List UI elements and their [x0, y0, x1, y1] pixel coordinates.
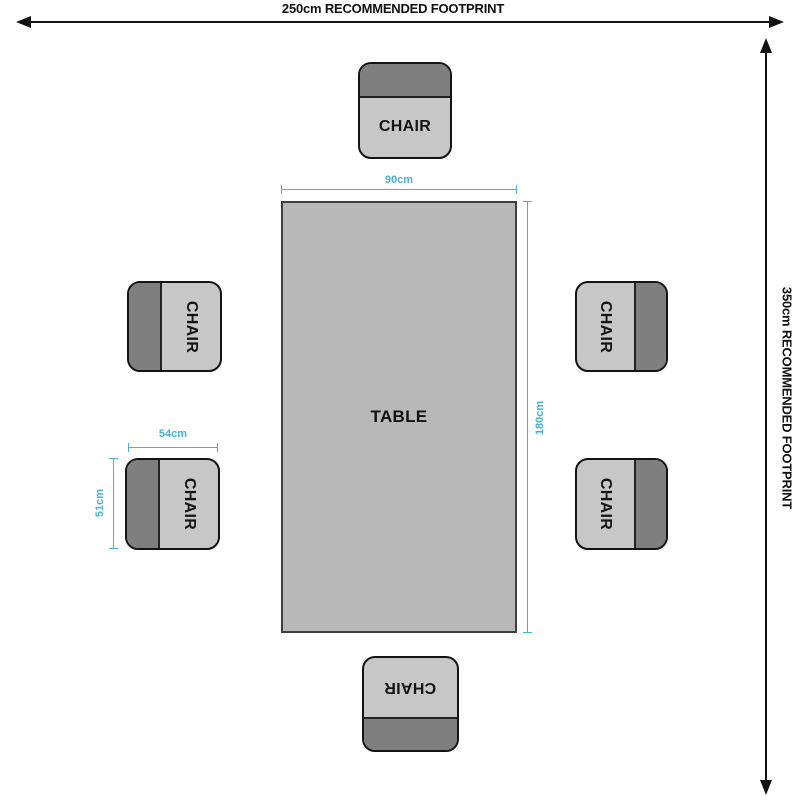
footprint-height-arrow	[759, 38, 773, 795]
footprint-width-label: 250cm RECOMMENDED FOOTPRINT	[0, 1, 786, 16]
chair-seat: CHAIR	[577, 283, 634, 370]
table: TABLE	[281, 201, 517, 633]
chair-backrest	[364, 717, 457, 750]
chair-top: CHAIR	[358, 62, 452, 159]
chair-bottom: CHAIR	[362, 656, 459, 752]
chair-depth-dimension-line	[113, 458, 114, 549]
table-width-dimension-line	[281, 189, 517, 190]
chair-right-upper: CHAIR	[575, 281, 668, 372]
chair-seat: CHAIR	[364, 658, 457, 717]
chair-label: CHAIR	[596, 478, 614, 530]
table-depth-dimension-line	[527, 201, 528, 633]
footprint-width-arrow	[16, 15, 784, 29]
chair-label: CHAIR	[379, 118, 431, 136]
footprint-height-label: 350cm RECOMMENDED FOOTPRINT	[780, 287, 795, 509]
arrow-shaft	[25, 21, 775, 23]
table-depth-dimension-label: 180cm	[534, 401, 546, 435]
chair-left-upper: CHAIR	[127, 281, 222, 372]
chair-backrest	[634, 283, 666, 370]
chair-width-dimension-label: 54cm	[159, 428, 187, 440]
arrowhead-down-icon	[760, 780, 772, 795]
chair-backrest	[127, 460, 160, 548]
table-label: TABLE	[371, 407, 428, 427]
chair-seat: CHAIR	[577, 460, 634, 548]
chair-seat: CHAIR	[162, 283, 220, 370]
chair-backrest	[634, 460, 666, 548]
chair-left-lower: CHAIR	[125, 458, 220, 550]
footprint-diagram: 250cm RECOMMENDED FOOTPRINT 350cm RECOMM…	[0, 0, 800, 800]
chair-label: CHAIR	[384, 678, 436, 696]
chair-width-dimension-line	[128, 447, 218, 448]
chair-right-lower: CHAIR	[575, 458, 668, 550]
chair-backrest	[129, 283, 162, 370]
chair-backrest	[360, 64, 450, 98]
table-width-dimension-label: 90cm	[385, 174, 413, 186]
chair-seat: CHAIR	[160, 460, 218, 548]
arrow-shaft	[765, 47, 767, 786]
chair-label: CHAIR	[596, 300, 614, 352]
chair-label: CHAIR	[180, 478, 198, 530]
chair-seat: CHAIR	[360, 98, 450, 157]
arrowhead-right-icon	[769, 16, 784, 28]
chair-label: CHAIR	[182, 300, 200, 352]
chair-depth-dimension-label: 51cm	[94, 489, 106, 517]
